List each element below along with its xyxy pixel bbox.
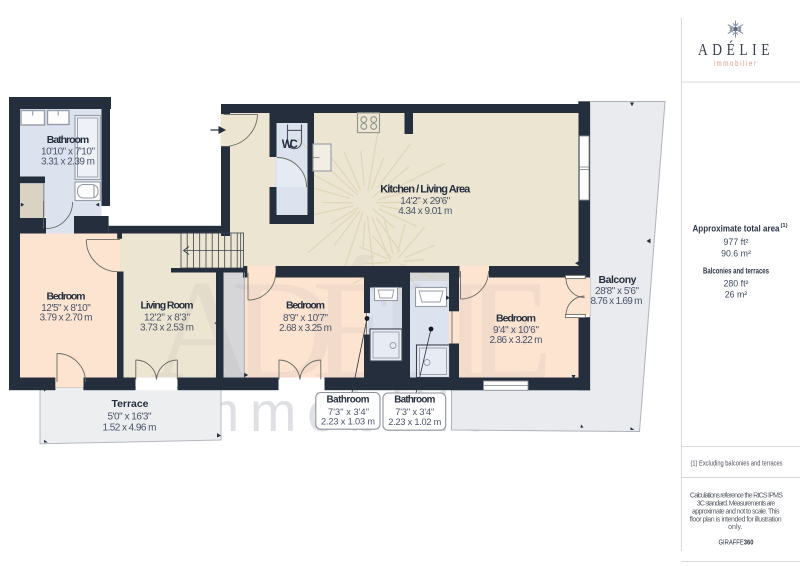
svg-text:2.23 x 1.03 m: 2.23 x 1.03 m	[321, 417, 375, 427]
svg-text:Calculations reference the RIC: Calculations reference the RICS IPMS	[690, 493, 783, 500]
svg-text:3.31 x 2.39 m: 3.31 x 2.39 m	[41, 156, 95, 167]
svg-text:2.86 x 3.22 m: 2.86 x 3.22 m	[490, 335, 543, 346]
svg-text:3.73 x 2.53 m: 3.73 x 2.53 m	[140, 323, 194, 334]
svg-text:(1): (1)	[781, 223, 788, 229]
svg-text:8.76 x 1.69 m: 8.76 x 1.69 m	[591, 296, 643, 307]
svg-text:3C standard. Measurements are: 3C standard. Measurements are	[697, 501, 776, 508]
svg-text:7'3" x 3'4": 7'3" x 3'4"	[395, 407, 434, 417]
svg-text:Bathroom: Bathroom	[47, 134, 90, 146]
svg-text:Bathroom: Bathroom	[327, 395, 370, 406]
svg-text:ADÉLIE: ADÉLIE	[698, 40, 774, 59]
svg-text:Kitchen / Living Area: Kitchen / Living Area	[380, 184, 471, 196]
svg-text:3.79 x 2.70 m: 3.79 x 2.70 m	[40, 312, 93, 323]
svg-text:280 ft²: 280 ft²	[724, 278, 749, 288]
svg-text:approximate and not to scale.: approximate and not to scale. This	[692, 508, 780, 515]
svg-text:GIRAFFE360: GIRAFFE360	[719, 538, 754, 547]
svg-text:Approximate total area: Approximate total area	[693, 223, 781, 234]
svg-text:Balcony: Balcony	[599, 274, 637, 286]
svg-text:1.52 x 4.96 m: 1.52 x 4.96 m	[103, 422, 157, 433]
svg-text:(1) Excluding balconies and te: (1) Excluding balconies and terraces	[691, 459, 783, 468]
svg-text:Bathroom: Bathroom	[394, 395, 435, 406]
svg-text:Terrace: Terrace	[112, 398, 149, 410]
svg-text:Balconies and terraces: Balconies and terraces	[703, 267, 769, 276]
svg-text:7'3" x 3'4": 7'3" x 3'4"	[328, 407, 369, 417]
svg-text:977 ft²: 977 ft²	[724, 237, 749, 247]
svg-text:WC: WC	[282, 139, 298, 151]
svg-text:5'0" x 16'3": 5'0" x 16'3"	[108, 412, 152, 423]
svg-text:90.6 m²: 90.6 m²	[721, 248, 751, 258]
svg-text:immobilier: immobilier	[714, 59, 758, 68]
svg-text:2.68 x 3.25 m: 2.68 x 3.25 m	[279, 323, 332, 334]
svg-text:26 m²: 26 m²	[725, 289, 748, 299]
svg-text:4.34 x 9.01 m: 4.34 x 9.01 m	[398, 206, 452, 217]
svg-text:Living Room: Living Room	[141, 300, 194, 312]
svg-text:floor plan is intended for ill: floor plan is intended for illustration	[690, 516, 782, 523]
svg-text:Bedroom: Bedroom	[286, 299, 325, 311]
svg-text:2.23 x 1.02 m: 2.23 x 1.02 m	[388, 417, 441, 427]
svg-text:only.: only.	[728, 524, 742, 531]
svg-text:Bedroom: Bedroom	[47, 290, 86, 302]
svg-text:Bedroom: Bedroom	[496, 313, 536, 325]
